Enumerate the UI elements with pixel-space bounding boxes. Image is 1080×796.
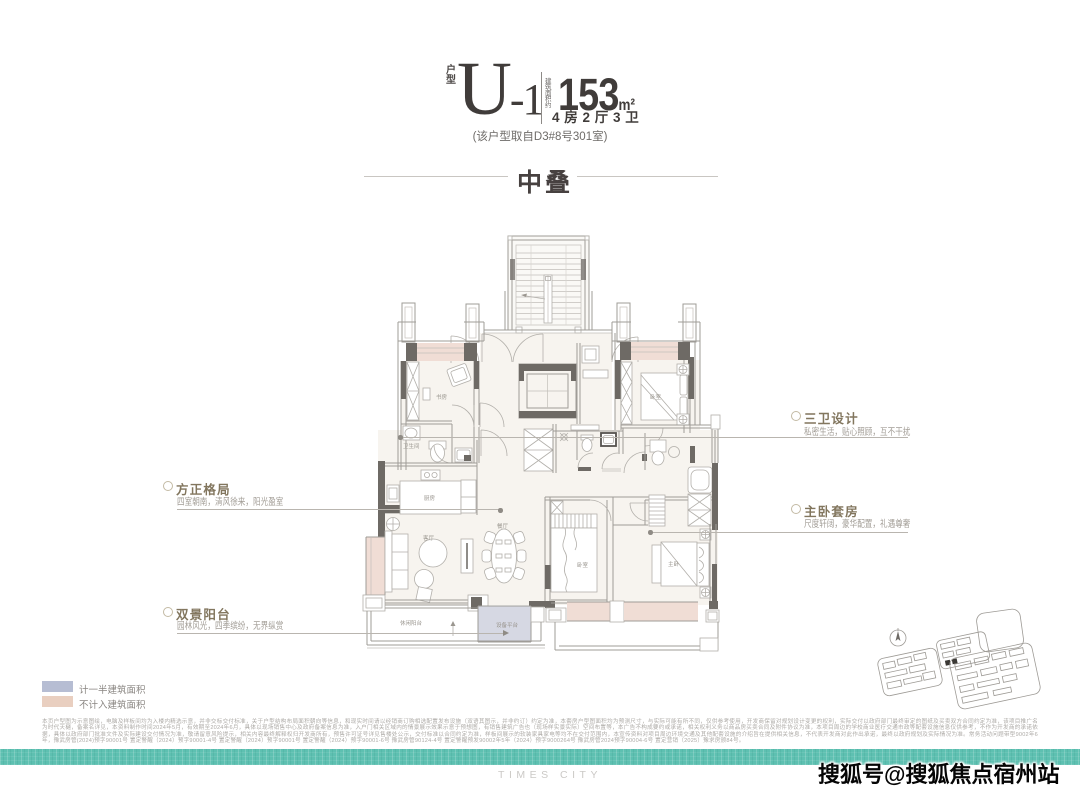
svg-text:设备平台: 设备平台: [496, 621, 519, 629]
svg-text:卫生间: 卫生间: [403, 442, 420, 450]
svg-text:餐厅: 餐厅: [497, 522, 509, 530]
svg-text:卧室: 卧室: [577, 561, 589, 569]
svg-text:休闲阳台: 休闲阳台: [400, 619, 423, 627]
svg-text:卧室: 卧室: [650, 393, 662, 401]
svg-text:厨房: 厨房: [424, 494, 436, 502]
svg-text:主卧: 主卧: [668, 560, 680, 568]
svg-text:客厅: 客厅: [423, 534, 435, 542]
svg-text:书房: 书房: [436, 393, 448, 401]
